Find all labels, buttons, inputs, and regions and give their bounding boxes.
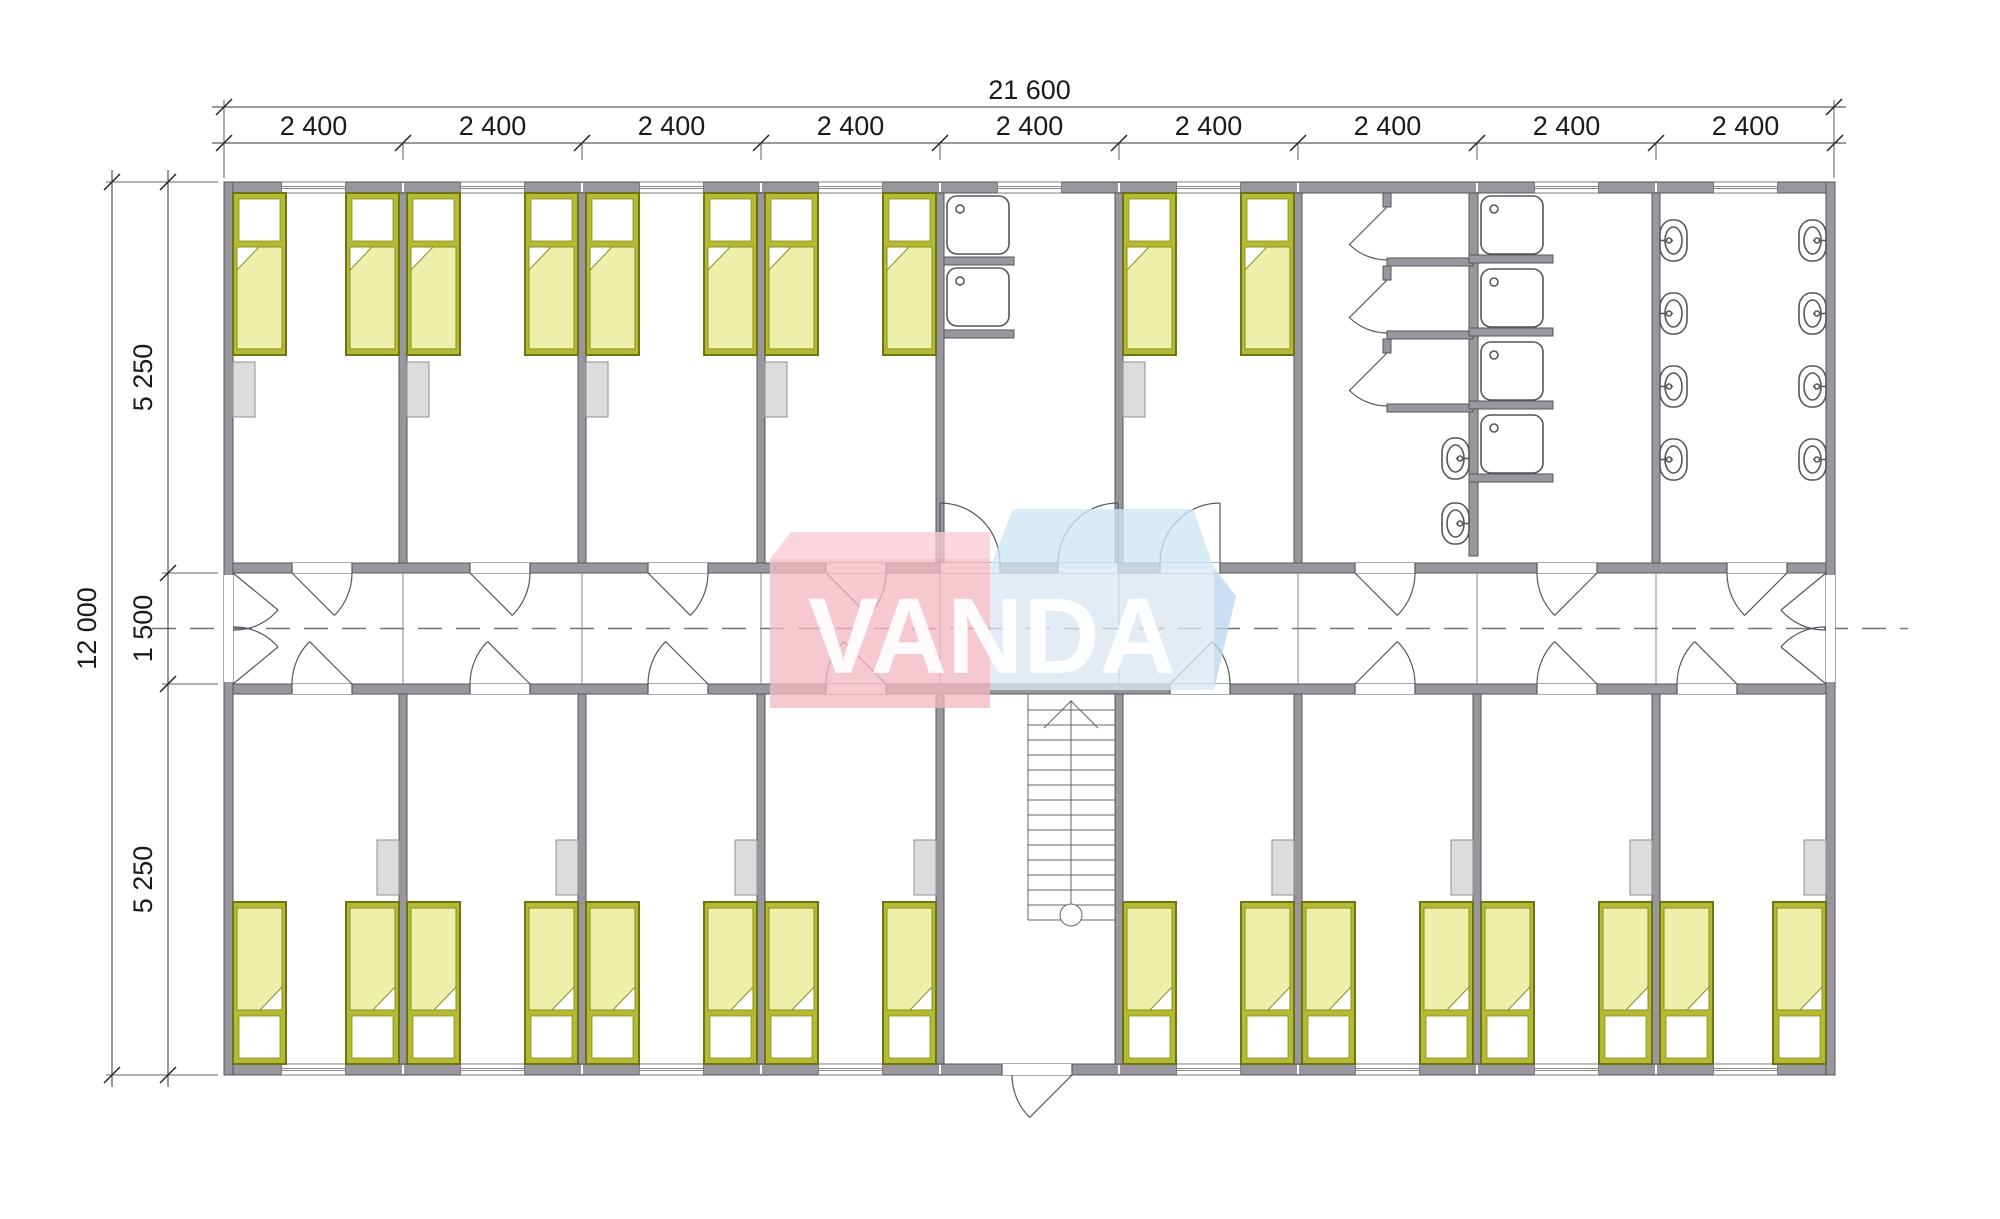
bed bbox=[704, 902, 757, 1064]
wardrobe bbox=[1123, 362, 1145, 417]
wall-joint bbox=[1297, 1065, 1299, 1074]
bed bbox=[407, 902, 460, 1064]
dimension-label: 2 400 bbox=[1712, 111, 1780, 141]
pillow bbox=[771, 1016, 812, 1058]
door bbox=[648, 642, 708, 684]
window-south bbox=[461, 1064, 525, 1075]
door-swing-arc bbox=[292, 642, 310, 684]
wash-basin bbox=[1442, 438, 1469, 479]
door bbox=[648, 573, 708, 615]
door-swing-arc bbox=[470, 642, 488, 684]
wash-basin bbox=[1660, 366, 1687, 407]
dimension-label: 2 400 bbox=[1175, 111, 1243, 141]
door bbox=[470, 642, 530, 684]
door bbox=[1355, 642, 1415, 684]
wash-basin bbox=[1660, 220, 1687, 261]
dimension-label: 2 400 bbox=[817, 111, 885, 141]
door-opening bbox=[1537, 684, 1597, 694]
door-leaf bbox=[292, 573, 334, 615]
door-leaf bbox=[1555, 642, 1597, 684]
stall-door-post bbox=[1383, 266, 1391, 280]
door-leaf bbox=[1349, 280, 1387, 318]
bed bbox=[765, 902, 818, 1064]
door bbox=[292, 573, 352, 615]
door bbox=[292, 642, 352, 684]
pillow bbox=[239, 1016, 280, 1058]
partition-wall bbox=[399, 193, 407, 563]
watermark: VANDA bbox=[770, 509, 1236, 708]
stall-door-post bbox=[1383, 193, 1391, 207]
bed bbox=[883, 193, 936, 355]
bed bbox=[525, 902, 578, 1064]
dimension-label: 2 400 bbox=[1533, 111, 1601, 141]
door-opening bbox=[1826, 575, 1835, 682]
door-opening bbox=[1537, 563, 1597, 573]
door-leaf bbox=[1555, 573, 1597, 615]
wardrobe bbox=[556, 840, 578, 895]
partition-wall bbox=[1652, 694, 1660, 1064]
door-leaf bbox=[1781, 647, 1826, 684]
stairs bbox=[1028, 695, 1115, 926]
partition-wall bbox=[578, 694, 586, 1064]
bed bbox=[1773, 902, 1826, 1064]
toilet-stall-door bbox=[1349, 207, 1387, 260]
partition-wall bbox=[1652, 193, 1660, 563]
pillow bbox=[531, 199, 572, 241]
door-leaf bbox=[310, 642, 352, 684]
partition-wall bbox=[757, 694, 765, 1064]
wardrobe bbox=[407, 362, 429, 417]
fixtures bbox=[947, 196, 1826, 544]
wash-basin bbox=[1660, 293, 1687, 334]
bed bbox=[525, 193, 578, 355]
door bbox=[1677, 642, 1737, 684]
pillow bbox=[889, 199, 930, 241]
bed bbox=[1660, 902, 1713, 1064]
door-swing-arc bbox=[1350, 318, 1388, 334]
pillow bbox=[1247, 199, 1288, 241]
door-opening bbox=[1677, 684, 1737, 694]
bed bbox=[586, 902, 639, 1064]
wash-basin bbox=[1799, 293, 1826, 334]
door-opening bbox=[1355, 684, 1415, 694]
door-leaf bbox=[666, 642, 708, 684]
wash-basin bbox=[1442, 503, 1469, 544]
wall-joint bbox=[939, 1065, 941, 1074]
bed bbox=[586, 193, 639, 355]
door-leaf bbox=[1349, 353, 1387, 391]
door-leaf bbox=[1745, 573, 1787, 615]
shower-wall bbox=[1469, 193, 1478, 556]
door-swing-arc bbox=[1350, 391, 1388, 407]
wall-joint bbox=[760, 1065, 762, 1074]
floor-plan-canvas: VANDA21 6002 4002 4002 4002 4002 4002 40… bbox=[0, 0, 2000, 1219]
dimension-label: 5 250 bbox=[128, 344, 158, 412]
door-leaf bbox=[488, 642, 530, 684]
pillow bbox=[771, 199, 812, 241]
wardrobe bbox=[735, 840, 757, 895]
door-swing-arc bbox=[1397, 573, 1415, 615]
door-opening bbox=[1002, 1064, 1072, 1075]
dimension-label: 5 250 bbox=[128, 846, 158, 914]
wall-joint bbox=[1476, 1065, 1478, 1074]
door bbox=[1355, 573, 1415, 615]
door-opening bbox=[292, 684, 352, 694]
watermark-text: VANDA bbox=[808, 575, 1176, 696]
toilet-stall-door bbox=[1349, 280, 1387, 333]
window-south bbox=[1714, 1064, 1778, 1075]
wall-joint bbox=[1118, 183, 1120, 192]
partition-wall bbox=[1294, 193, 1302, 563]
window-north bbox=[1535, 182, 1599, 193]
door-swing-arc bbox=[512, 573, 530, 615]
wardrobe bbox=[233, 362, 255, 417]
dimension-label: 2 400 bbox=[280, 111, 348, 141]
window-south bbox=[640, 1064, 704, 1075]
wardrobe bbox=[586, 362, 608, 417]
wall-joint bbox=[1476, 183, 1478, 192]
bed bbox=[346, 902, 399, 1064]
wall-joint bbox=[581, 183, 583, 192]
door-leaf bbox=[1030, 1075, 1072, 1117]
sink-counter-wall bbox=[944, 257, 1014, 265]
wardrobe bbox=[1804, 840, 1826, 895]
pillow bbox=[1779, 1016, 1820, 1058]
pillow bbox=[710, 1016, 751, 1058]
floor-plan: VANDA21 6002 4002 4002 4002 4002 4002 40… bbox=[0, 0, 2000, 1219]
window-north bbox=[282, 182, 346, 193]
wardrobe bbox=[377, 840, 399, 895]
wall-joint bbox=[1118, 1065, 1120, 1074]
window-south bbox=[819, 1064, 883, 1075]
wall-joint bbox=[760, 183, 762, 192]
wardrobe bbox=[1630, 840, 1652, 895]
door bbox=[1727, 573, 1787, 615]
partition-wall bbox=[757, 193, 765, 563]
door-swing-arc bbox=[648, 642, 666, 684]
bed bbox=[704, 193, 757, 355]
door-swing-arc bbox=[1537, 642, 1555, 684]
bed bbox=[1123, 902, 1176, 1064]
door-opening bbox=[648, 684, 708, 694]
window-south bbox=[282, 1064, 346, 1075]
shower-tray bbox=[1481, 415, 1543, 473]
door-opening bbox=[224, 575, 233, 682]
partition-wall bbox=[1115, 694, 1123, 1064]
pillow bbox=[889, 1016, 930, 1058]
door-leaf bbox=[233, 573, 278, 610]
window-south bbox=[1535, 1064, 1599, 1075]
pillow bbox=[710, 199, 751, 241]
wardrobe bbox=[765, 362, 787, 417]
door-leaf bbox=[648, 573, 690, 615]
pillow bbox=[1308, 1016, 1349, 1058]
kitchen-sink bbox=[947, 268, 1009, 326]
door-leaf bbox=[1349, 207, 1387, 245]
door-leaf bbox=[1355, 642, 1397, 684]
wardrobe bbox=[1451, 840, 1473, 895]
partition-wall bbox=[399, 694, 407, 1064]
shower-partition bbox=[1469, 401, 1553, 409]
bed bbox=[1599, 902, 1652, 1064]
pillow bbox=[1247, 1016, 1288, 1058]
toilet-stall-door bbox=[1349, 353, 1387, 406]
shower-partition bbox=[1469, 255, 1553, 263]
wash-basin bbox=[1799, 220, 1826, 261]
window-north bbox=[998, 182, 1062, 193]
wardrobe bbox=[914, 840, 936, 895]
dimension-label: 2 400 bbox=[638, 111, 706, 141]
door-swing-arc bbox=[1350, 245, 1388, 261]
door bbox=[1012, 1075, 1072, 1117]
dimension-label: 2 400 bbox=[996, 111, 1064, 141]
sink-counter-wall bbox=[944, 330, 1014, 338]
partition-wall bbox=[936, 694, 944, 1064]
pillow bbox=[1666, 1016, 1707, 1058]
window-north bbox=[1714, 182, 1778, 193]
pillow bbox=[352, 1016, 393, 1058]
shower-partition bbox=[1469, 474, 1553, 482]
window-north bbox=[640, 182, 704, 193]
wash-basin bbox=[1799, 366, 1826, 407]
wash-basin bbox=[1799, 439, 1826, 480]
bed bbox=[1481, 902, 1534, 1064]
bed bbox=[1241, 193, 1294, 355]
pillow bbox=[592, 199, 633, 241]
door-leaf bbox=[1781, 573, 1826, 610]
pillow bbox=[1487, 1016, 1528, 1058]
shower-partition bbox=[1469, 328, 1553, 336]
door-swing-arc bbox=[1727, 573, 1745, 615]
door-opening bbox=[470, 563, 530, 573]
dimension-label: 2 400 bbox=[1354, 111, 1422, 141]
window-south bbox=[1177, 1064, 1241, 1075]
dimension-label: 1 500 bbox=[128, 595, 158, 663]
pillow bbox=[1605, 1016, 1646, 1058]
bed bbox=[1420, 902, 1473, 1064]
door-opening bbox=[648, 563, 708, 573]
pillow bbox=[413, 1016, 454, 1058]
bed bbox=[346, 193, 399, 355]
dimension-label: 2 400 bbox=[459, 111, 527, 141]
door-swing-arc bbox=[1537, 573, 1555, 615]
watermark-blue-box-top bbox=[990, 509, 1214, 568]
door-swing-arc bbox=[334, 573, 352, 615]
bed bbox=[1241, 902, 1294, 1064]
bed bbox=[1302, 902, 1355, 1064]
window-north bbox=[461, 182, 525, 193]
pillow bbox=[1129, 1016, 1170, 1058]
window-north bbox=[1177, 182, 1241, 193]
shower-tray bbox=[1481, 196, 1543, 254]
partition-wall bbox=[1115, 193, 1123, 563]
window-south bbox=[1356, 1064, 1420, 1075]
wash-basin bbox=[1660, 439, 1687, 480]
bed bbox=[883, 902, 936, 1064]
partition-wall bbox=[578, 193, 586, 563]
door bbox=[1537, 573, 1597, 615]
bed bbox=[233, 193, 286, 355]
shower-tray bbox=[1481, 269, 1543, 327]
pillow bbox=[1129, 199, 1170, 241]
wall-joint bbox=[402, 183, 404, 192]
door-leaf bbox=[1355, 573, 1397, 615]
door bbox=[1537, 642, 1597, 684]
door-swing-arc bbox=[1677, 642, 1695, 684]
window-north bbox=[819, 182, 883, 193]
door-swing-arc bbox=[690, 573, 708, 615]
door-swing-arc bbox=[1397, 642, 1415, 684]
wall-joint bbox=[1655, 1065, 1657, 1074]
toilet-stall-partition bbox=[1387, 258, 1473, 266]
pillow bbox=[352, 199, 393, 241]
wall-joint bbox=[939, 183, 941, 192]
shower-tray bbox=[1481, 342, 1543, 400]
bed bbox=[407, 193, 460, 355]
door-leaf bbox=[470, 573, 512, 615]
wardrobe bbox=[1272, 840, 1294, 895]
wall-joint bbox=[1655, 183, 1657, 192]
pillow bbox=[592, 1016, 633, 1058]
wall-joint bbox=[1297, 183, 1299, 192]
dimension-label: 12 000 bbox=[72, 587, 102, 670]
wall-joint bbox=[581, 1065, 583, 1074]
stall-door-post bbox=[1383, 339, 1391, 353]
bed bbox=[1123, 193, 1176, 355]
pillow bbox=[413, 199, 454, 241]
door-opening bbox=[1727, 563, 1787, 573]
partition-wall bbox=[1294, 694, 1302, 1064]
watermark-red-box-top bbox=[770, 532, 990, 559]
door-opening bbox=[292, 563, 352, 573]
pillow bbox=[239, 199, 280, 241]
wall-joint bbox=[402, 1065, 404, 1074]
door-swing-arc bbox=[1012, 1075, 1030, 1117]
toilet-stall-partition bbox=[1387, 331, 1473, 339]
door-opening bbox=[1355, 563, 1415, 573]
pillow bbox=[531, 1016, 572, 1058]
door-leaf bbox=[1695, 642, 1737, 684]
toilet-stall-partition bbox=[1387, 404, 1473, 412]
bed bbox=[765, 193, 818, 355]
kitchen-sink bbox=[947, 196, 1009, 254]
door-leaf bbox=[233, 647, 278, 684]
partition-wall bbox=[1473, 694, 1481, 1064]
dimension-label: 21 600 bbox=[988, 75, 1071, 105]
door bbox=[470, 573, 530, 615]
bed bbox=[233, 902, 286, 1064]
pillow bbox=[1426, 1016, 1467, 1058]
stair-start-post bbox=[1060, 904, 1082, 926]
door-opening bbox=[470, 684, 530, 694]
